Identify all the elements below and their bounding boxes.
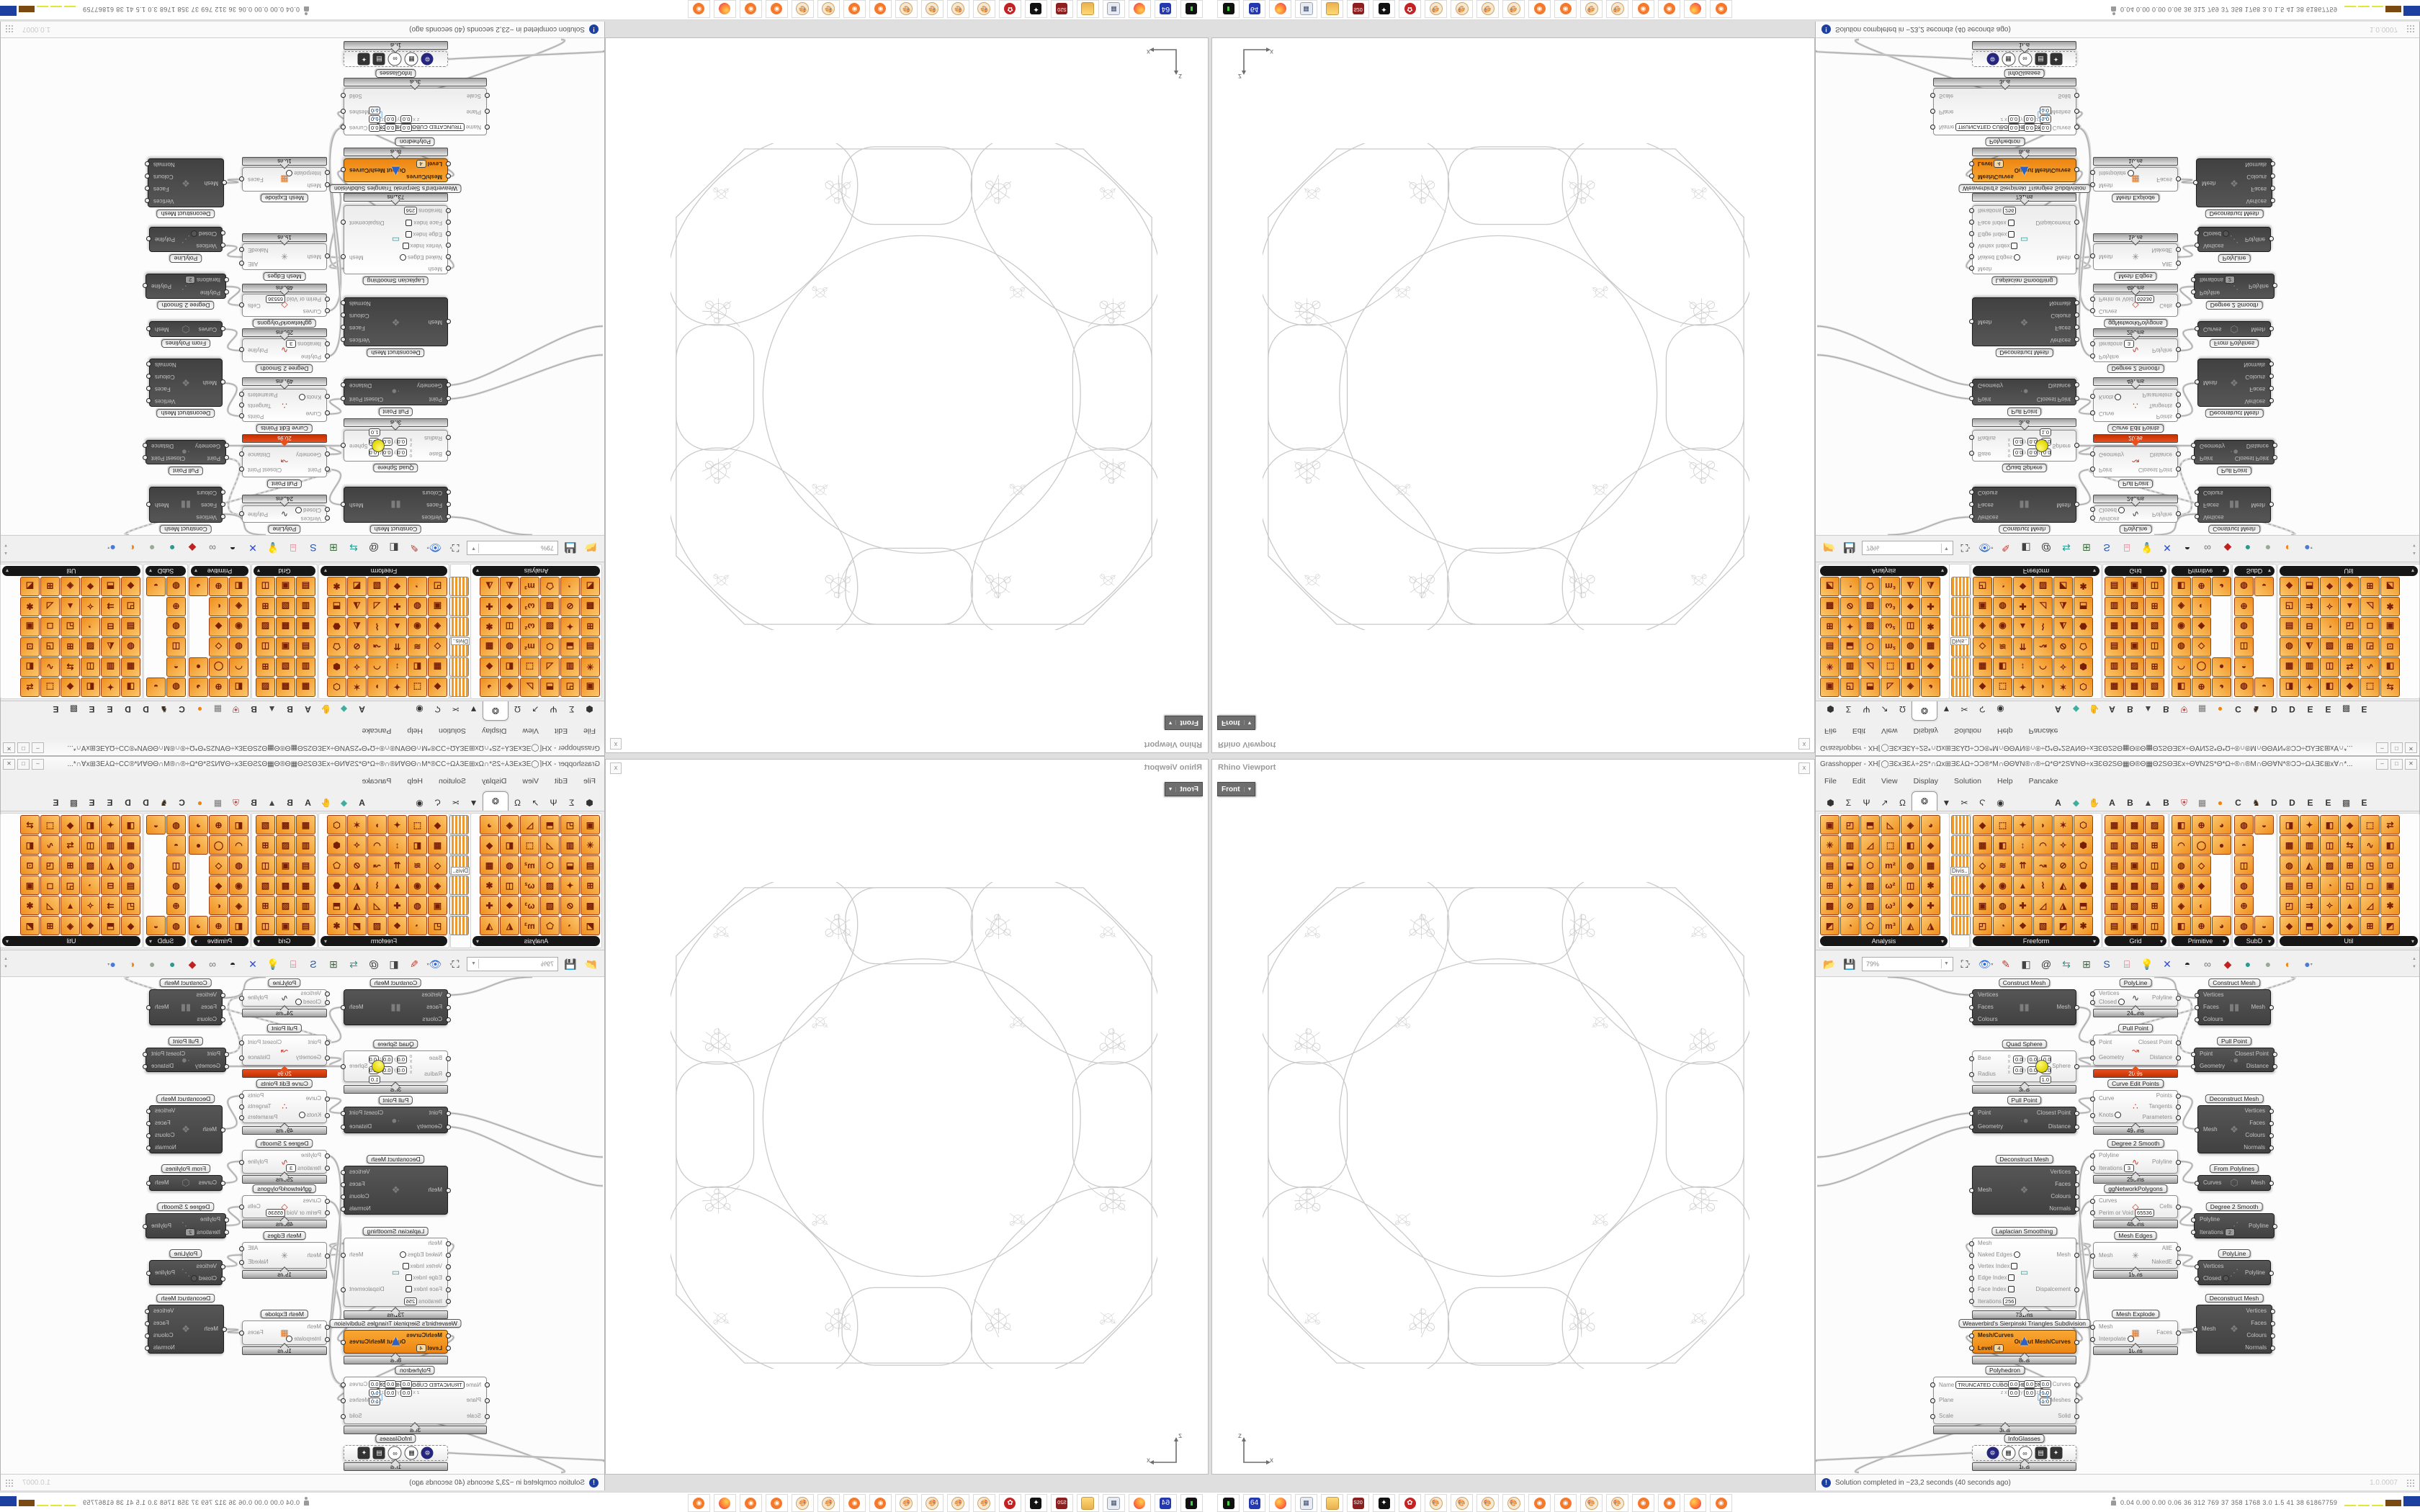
component-icon[interactable]: ◫	[256, 637, 275, 657]
component-icon[interactable]: ◆	[1921, 657, 1940, 677]
port-nub[interactable]	[2074, 1125, 2079, 1130]
component-icon[interactable]: ⬚	[40, 678, 60, 697]
port-closest-point[interactable]: Closest Point	[349, 1110, 383, 1116]
port-sphere[interactable]: Sphere	[349, 443, 368, 449]
tab-vector[interactable]: ↗	[526, 795, 544, 811]
port-mesh[interactable]: Mesh	[307, 1252, 321, 1259]
bulb-icon[interactable]: 💡	[265, 956, 281, 972]
node-label[interactable]: Quad Sphere	[373, 1040, 418, 1048]
component-icon[interactable]: ⬚	[1993, 815, 2012, 834]
component-icon[interactable]: ✶	[347, 815, 367, 834]
infoglasses-icon[interactable]: ▤	[2035, 1447, 2047, 1459]
component-icon[interactable]: ◆	[2280, 916, 2299, 935]
tab-C[interactable]: C	[173, 701, 191, 717]
port-vertices[interactable]: Vertices	[197, 243, 217, 249]
component-icon[interactable]: m³	[520, 577, 539, 596]
component-icon[interactable]: ◍	[229, 855, 248, 875]
component-icon[interactable]: ▧	[540, 876, 560, 895]
port-iterations[interactable]: Iterations256	[1978, 1297, 2016, 1305]
port-mesh-curves[interactable]: Mesh/Curves	[406, 174, 442, 180]
taskbar-app-palette[interactable]: 🎨	[1451, 0, 1473, 18]
component-icon[interactable]: ↝	[367, 637, 387, 657]
port-nub[interactable]	[2195, 380, 2200, 385]
taskbar-app-blender[interactable]: ◉	[1554, 1494, 1577, 1512]
component-icon[interactable]: ▤	[2105, 855, 2124, 875]
preview-icon[interactable]: 👁▾	[426, 956, 442, 972]
port-geometry[interactable]: Geometry	[1978, 382, 2003, 389]
port-mesh[interactable]: Mesh	[2203, 380, 2218, 387]
component-icon[interactable]: ◉	[2172, 617, 2191, 636]
component-icon[interactable]: ↕	[387, 657, 407, 677]
port-distance[interactable]: Distance	[349, 382, 372, 389]
component-icon[interactable]: ◫	[166, 855, 186, 875]
tab-display[interactable]: Ϛ	[429, 795, 447, 811]
component-icon[interactable]: ⬠	[327, 855, 346, 875]
port-nub[interactable]	[224, 1064, 229, 1069]
component-icon[interactable]: ▥	[449, 815, 469, 834]
checkbox[interactable]	[2008, 231, 2015, 238]
value-chip[interactable]: 0.0	[2013, 1056, 2023, 1063]
value-chip[interactable]: 0.0	[2040, 1380, 2051, 1388]
taskbar-app-blackapp[interactable]: ✦	[1025, 0, 1047, 18]
node-degree---smooth[interactable]: PolylineIterations2Polyline⋰	[2194, 1213, 2275, 1238]
component-icon[interactable]: ⬠	[2074, 855, 2093, 875]
node-pull-point[interactable]: PointGeometryClosest PointDistance·●	[2194, 1048, 2275, 1072]
palette-group-label[interactable]: Util▾	[2280, 936, 2418, 946]
palette-group-label[interactable]: Primitive▾	[191, 936, 248, 946]
taskbar-app-blender[interactable]: ◉	[869, 1494, 892, 1512]
component-icon[interactable]: ◆	[1921, 835, 1940, 855]
rings-icon[interactable]: ∞	[2200, 540, 2215, 556]
node-label[interactable]: Mesh Explode	[261, 194, 308, 202]
port-nub[interactable]	[2176, 996, 2181, 1001]
component-icon[interactable]: ▨	[2145, 617, 2164, 636]
node-degree---smooth[interactable]: PolylineIterations3Polyline∿	[2093, 338, 2178, 362]
port-nub[interactable]	[341, 1182, 346, 1187]
node-label[interactable]: PolyLine	[170, 254, 202, 263]
component-icon[interactable]: ◿	[540, 657, 560, 677]
tab-D[interactable]: D	[2265, 701, 2283, 717]
port-nub[interactable]	[1930, 109, 1935, 114]
port-tangents[interactable]: Tangents	[248, 1103, 271, 1110]
toolbar-overflow-scroll[interactable]: ▲▼	[2411, 539, 2418, 557]
component-icon[interactable]: ◰	[2280, 896, 2299, 915]
component-icon[interactable]: ✱	[480, 617, 499, 636]
port-faces[interactable]: Faces	[248, 176, 264, 183]
node-label[interactable]: Deconstruct Mesh	[2205, 210, 2264, 218]
port-nub[interactable]	[224, 1218, 229, 1223]
component-icon[interactable]: ❖	[81, 916, 100, 935]
menu-item-file[interactable]: File	[1824, 726, 1837, 735]
component-icon[interactable]: ∿	[2360, 657, 2380, 677]
component-icon[interactable]: ◩	[20, 577, 40, 596]
value-chip[interactable]: 0.0	[2008, 1389, 2020, 1397]
component-icon[interactable]: ▥	[1951, 876, 1971, 895]
port-polyline[interactable]: Polyline	[248, 994, 268, 1001]
tab-maths[interactable]: Σ	[563, 795, 581, 811]
component-icon[interactable]: ⬠	[1860, 577, 1880, 596]
menu-item-edit[interactable]: Edit	[555, 777, 568, 786]
value-chip[interactable]: 0.0	[383, 1056, 393, 1063]
port-nub[interactable]	[2269, 1181, 2274, 1186]
component-icon[interactable]: ◯	[2192, 835, 2211, 855]
tab-eye[interactable]: ◉	[1991, 795, 2009, 811]
port-colours[interactable]: Colours	[422, 1016, 442, 1022]
port-distance[interactable]: Distance	[151, 444, 174, 450]
value-chip[interactable]: 0.0	[2013, 1066, 2023, 1074]
save-file-icon[interactable]: 💾	[563, 540, 578, 556]
port-polyline[interactable]: Polyline	[248, 1158, 268, 1165]
node-label[interactable]: ggNetworkPolygons	[253, 319, 316, 328]
component-icon[interactable]: ⊞	[60, 855, 80, 875]
node-from-polylines[interactable]: CurvesMesh⬡	[149, 1175, 223, 1191]
component-icon[interactable]: ◫	[2145, 855, 2164, 875]
port-nub[interactable]	[446, 1005, 451, 1010]
taskbar-app-blackapp[interactable]: ✦	[1373, 1494, 1395, 1512]
port-nub[interactable]	[220, 514, 225, 519]
node-label[interactable]: Deconstruct Mesh	[157, 210, 215, 218]
node-label[interactable]: Curve Edit Points	[256, 1079, 313, 1088]
node-label[interactable]: InfoGlasses	[2004, 69, 2045, 78]
port-plane[interactable]: Plane	[467, 109, 481, 115]
port-distance[interactable]: Distance	[151, 1063, 174, 1069]
gha-loader-icon[interactable]: ⇆	[346, 956, 362, 972]
palette-group-label[interactable]: Util▾	[2, 936, 140, 946]
component-icon[interactable]: ⬢	[2074, 657, 2093, 677]
port-iterations[interactable]: Iterations3	[286, 1164, 321, 1172]
component-icon[interactable]: ✱	[2074, 577, 2093, 596]
grasshopper-title-bar[interactable]: Grasshopper - XH⌈◯ƎƐxƎƐ⅄÷2S*∩Ωx⊞ƎƐ⅄Ω÷ƆƆ®…	[1816, 757, 2419, 773]
port-nub[interactable]	[341, 301, 346, 306]
port-nub[interactable]	[2176, 1260, 2181, 1265]
port-nub[interactable]	[325, 991, 330, 996]
viewport-header[interactable]: Rhino Viewport x	[606, 735, 1208, 752]
component-icon[interactable]: ▧	[276, 657, 295, 677]
port-nub[interactable]	[2090, 308, 2095, 313]
value-chip[interactable]: 0.0	[2027, 1056, 2038, 1063]
component-icon[interactable]: ◰	[560, 678, 580, 697]
palette-group-label[interactable]: Analysis▾	[1820, 566, 1948, 576]
s-search-icon[interactable]: S	[2099, 540, 2115, 556]
component-icon[interactable]: ⬢	[327, 835, 346, 855]
component-icon[interactable]: ◿	[2033, 896, 2053, 915]
port-colours[interactable]: Colours	[2051, 1193, 2071, 1200]
rings-icon[interactable]: ∞	[205, 956, 220, 972]
component-icon[interactable]: ≋	[408, 855, 427, 875]
port-nub[interactable]	[1969, 396, 1974, 401]
port-point[interactable]: Point	[429, 1110, 442, 1116]
port-nub[interactable]	[1930, 1414, 1935, 1419]
taskbar-app-palette[interactable]: 🎨	[947, 1494, 969, 1512]
menu-item-display[interactable]: Display	[482, 726, 506, 735]
toggle-open[interactable]	[2118, 507, 2125, 513]
port-nub[interactable]	[2269, 1146, 2274, 1151]
node-laplacian-smoothing[interactable]: MeshNaked EdgesVertex IndexEdge IndexFac…	[344, 205, 448, 274]
component-icon[interactable]: ⬡	[540, 855, 560, 875]
component-icon[interactable]: ❖	[500, 597, 519, 616]
port-nub[interactable]	[1969, 435, 1974, 440]
port-nub[interactable]	[2176, 176, 2181, 181]
port-nub[interactable]	[325, 1000, 330, 1005]
component-icon[interactable]: ◨	[121, 678, 140, 697]
port-nub[interactable]	[325, 1254, 330, 1259]
node-canvas[interactable]: Construct MeshVerticesFacesColoursMesh▮▮…	[1, 37, 604, 536]
component-icon[interactable]: ▨	[256, 876, 275, 895]
sketch-icon[interactable]: ✎	[406, 956, 422, 972]
port-nub[interactable]	[325, 516, 330, 521]
port-point[interactable]: Point	[1978, 396, 1991, 402]
component-icon[interactable]: ω³	[1881, 896, 1900, 915]
component-icon[interactable]: ⬒	[2300, 916, 2319, 935]
component-icon[interactable]: ◕	[480, 678, 499, 697]
component-icon[interactable]: ◰	[121, 597, 140, 616]
component-icon[interactable]: ⊕	[2234, 896, 2254, 915]
gem-red-icon[interactable]: ◆	[2220, 956, 2236, 972]
port-colours[interactable]: Colours	[1978, 490, 1998, 496]
tab-D[interactable]: D	[2283, 701, 2301, 717]
component-icon[interactable]: ▣	[2125, 577, 2144, 596]
port-vertices[interactable]: Vertices	[301, 990, 321, 996]
minimize-button[interactable]: –	[32, 759, 44, 770]
component-icon[interactable]: ⬒	[2074, 896, 2093, 915]
port-point[interactable]: Point	[1978, 1110, 1991, 1116]
port-nub[interactable]	[2176, 1160, 2181, 1165]
node-label[interactable]: Curve Edit Points	[2107, 424, 2164, 433]
component-icon[interactable]: ◕	[2212, 916, 2231, 935]
gift-icon[interactable]: ⌸	[285, 956, 301, 972]
component-icon[interactable]: ◻	[40, 617, 60, 636]
component-icon[interactable]: ▣	[2125, 855, 2144, 875]
component-icon[interactable]: ◔	[408, 916, 427, 935]
component-icon[interactable]: ◇	[428, 637, 447, 657]
component-icon[interactable]: ⊞	[256, 597, 275, 616]
taskbar-app-redapp[interactable]: ✿	[999, 0, 1021, 18]
port-faces[interactable]: Faces	[2203, 502, 2219, 508]
port-points[interactable]: Points	[248, 1092, 264, 1099]
port-mesh[interactable]: Mesh	[202, 380, 217, 387]
node-label[interactable]: Degree 2 Smooth	[2206, 301, 2263, 310]
port-nub[interactable]	[325, 507, 330, 512]
component-icon[interactable]: ◿	[40, 597, 60, 616]
menu-item-pancake[interactable]: Pancake	[362, 777, 392, 786]
component-icon[interactable]: m²	[1881, 855, 1900, 875]
port-interpolate[interactable]: Interpolate	[286, 1336, 321, 1342]
tab-mountain[interactable]: ▲	[263, 795, 281, 811]
component-icon[interactable]: ⬚	[520, 657, 539, 677]
taskbar-app-firefox[interactable]	[714, 0, 736, 18]
component-icon[interactable]: ◭	[1901, 577, 1920, 596]
node-label[interactable]: Polyhedron	[395, 138, 435, 146]
component-icon[interactable]: ◍	[166, 815, 186, 834]
port-solid[interactable]: Solid	[2058, 1413, 2071, 1419]
port-vertex-index[interactable]: Vertex Index	[403, 1263, 442, 1269]
port-radius[interactable]: Radius	[1978, 435, 1996, 441]
component-icon[interactable]: ◰	[1840, 815, 1860, 834]
port-vertices[interactable]: Vertices	[2245, 1107, 2265, 1114]
port-polyline[interactable]: Polyline	[248, 511, 268, 518]
node-construct-mesh[interactable]: VerticesFacesColoursMesh▮▮	[1972, 487, 2076, 523]
component-icon[interactable]: ⇉	[2300, 597, 2319, 616]
node-label[interactable]: Mesh Edges	[2114, 272, 2156, 281]
port-nub[interactable]	[220, 1181, 225, 1186]
component-icon[interactable]: ⬡	[327, 815, 346, 834]
node-construct-mesh[interactable]: VerticesFacesColoursMesh▮▮	[149, 989, 223, 1025]
port-curves[interactable]: Curves	[349, 125, 367, 131]
port-perim-or-void[interactable]: Perim or Void65536	[266, 1209, 321, 1217]
port-mesh[interactable]: Mesh	[2099, 1252, 2113, 1259]
taskbar-app-blender[interactable]: ◉	[766, 0, 788, 18]
port-colours[interactable]: Colours	[197, 490, 217, 496]
port-nub[interactable]	[446, 1241, 451, 1246]
ball-teal-icon[interactable]: ●	[2240, 956, 2256, 972]
component-icon[interactable]: ◿	[367, 597, 387, 616]
gha-loader-icon[interactable]: ⇆	[2058, 540, 2074, 556]
port-nub[interactable]	[1969, 243, 1974, 248]
tab-gem[interactable]: ◆	[335, 701, 353, 717]
port-nub[interactable]	[239, 392, 244, 397]
component-icon[interactable]: ▥	[1840, 835, 1860, 855]
component-icon[interactable]: ▧	[276, 597, 295, 616]
component-icon[interactable]: ◩	[2053, 916, 2073, 935]
component-icon[interactable]: ◕	[1921, 815, 1940, 834]
tab-D[interactable]: D	[119, 701, 137, 717]
component-icon[interactable]: ◒	[2254, 678, 2274, 697]
node-polyline[interactable]: VerticesClosedPolyline⋰	[2197, 1260, 2271, 1285]
taskbar-app-blender[interactable]: ◉	[1710, 1494, 1732, 1512]
port-vertices[interactable]: Vertices	[2203, 514, 2223, 521]
port-nub[interactable]	[341, 93, 346, 98]
port-colours[interactable]: Colours	[2245, 1132, 2265, 1138]
close-icon[interactable]: x	[610, 762, 622, 774]
menu-item-edit[interactable]: Edit	[1852, 777, 1865, 786]
node-label[interactable]: Deconstruct Mesh	[367, 348, 425, 357]
component-icon[interactable]: ◆	[209, 617, 228, 636]
tab-darkgrid[interactable]: ▩	[2337, 795, 2355, 811]
port-vertices[interactable]: Vertices	[2099, 516, 2119, 522]
port-faces[interactable]: Faces	[201, 1004, 217, 1010]
component-icon[interactable]: ◍	[2280, 855, 2299, 875]
port-tangents[interactable]: Tangents	[2149, 1103, 2172, 1110]
component-icon[interactable]: ✱	[2380, 597, 2400, 616]
node-deconstruct-mesh[interactable]: MeshVerticesFacesColoursNormals❖	[1972, 1166, 2076, 1215]
window-plant-icon[interactable]: ⊞	[2079, 540, 2094, 556]
port-nub[interactable]	[341, 1170, 346, 1175]
port-faces[interactable]: Faces	[2249, 1120, 2265, 1126]
taskbar-app-blender[interactable]: ◉	[1528, 0, 1551, 18]
port-nub[interactable]	[2090, 1325, 2095, 1330]
node-label[interactable]: Degree 2 Smooth	[158, 301, 215, 310]
port-iterations[interactable]: Iterations256	[1978, 207, 2016, 215]
component-icon[interactable]: ◍	[408, 896, 427, 915]
component-icon[interactable]: ◫	[500, 617, 519, 636]
component-icon[interactable]: ⊞	[2360, 916, 2380, 935]
port-nub[interactable]	[446, 266, 451, 271]
node-label[interactable]: Pull Point	[267, 480, 302, 488]
component-icon[interactable]: ▥	[1951, 597, 1971, 616]
component-icon[interactable]: ▦	[296, 815, 315, 834]
value-chip[interactable]: 4	[1994, 160, 2004, 168]
port-point[interactable]: Point	[207, 1050, 220, 1057]
port-nub[interactable]	[2090, 254, 2095, 259]
port-nub[interactable]	[2176, 1094, 2181, 1099]
taskbar-app-palette[interactable]: 🎨	[895, 0, 918, 18]
component-icon[interactable]: ⊟	[101, 876, 120, 895]
node-deconstruct-mesh[interactable]: MeshVerticesFacesColoursNormals❖	[149, 1105, 223, 1153]
save-file-icon[interactable]: 💾	[1842, 956, 1857, 972]
tab-shield[interactable]: ⛨	[2175, 701, 2193, 717]
port-parameters[interactable]: Parameters	[248, 392, 277, 398]
port-nub[interactable]	[2191, 1052, 2196, 1057]
resize-grip[interactable]	[5, 24, 14, 33]
component-icon[interactable]: ω²	[1881, 617, 1900, 636]
component-icon[interactable]: ◱	[60, 617, 80, 636]
component-icon[interactable]: ▣	[428, 597, 447, 616]
port-nub[interactable]	[446, 435, 451, 440]
tab-gem[interactable]: ◆	[2067, 795, 2085, 811]
taskbar-app-blender[interactable]: ◉	[1658, 0, 1680, 18]
taskbar-app-blender[interactable]: ◉	[843, 1494, 866, 1512]
component-icon[interactable]: ◈	[2172, 597, 2191, 616]
port-nub[interactable]	[485, 125, 490, 130]
tab-E[interactable]: E	[2301, 701, 2319, 717]
node-weaverbird-s-sierpinski-triangles-subdivision[interactable]: Mesh/CurvesLevel4Output Mesh/Curves▲	[1972, 158, 2076, 182]
port-normals[interactable]: Normals	[2049, 301, 2071, 307]
node-pull-point[interactable]: PointGeometryClosest PointDistance↝	[2093, 1035, 2178, 1066]
port-nub[interactable]	[2272, 1052, 2277, 1057]
port-nub[interactable]	[1969, 1333, 1974, 1338]
port-nub[interactable]	[239, 176, 244, 181]
port-nub[interactable]	[2074, 396, 2079, 401]
component-icon[interactable]: ❖	[387, 577, 407, 596]
component-icon[interactable]: ◍	[166, 678, 186, 697]
zoom-extents-icon[interactable]: ⛶▾	[1958, 956, 1973, 972]
port-nub[interactable]	[341, 1064, 346, 1069]
component-icon[interactable]: ◿	[1860, 657, 1880, 677]
component-icon[interactable]: ↕	[387, 835, 407, 855]
component-icon[interactable]: ⬓	[1840, 637, 1860, 657]
port-nub[interactable]	[2074, 1414, 2079, 1419]
palette-group-label[interactable]: Analysis▾	[1820, 936, 1948, 946]
sketch-icon[interactable]: ✎	[1998, 956, 2014, 972]
node-canvas[interactable]: Construct MeshVerticesFacesColoursMesh▮▮…	[1816, 976, 2419, 1475]
port-dispalcement[interactable]: Dispalcement	[349, 220, 384, 226]
component-icon[interactable]: ⊞	[1820, 876, 1839, 895]
port-polyline[interactable]: Polyline	[200, 1216, 220, 1223]
port-geometry[interactable]: Geometry	[1978, 1123, 2003, 1130]
component-icon[interactable]: ▦	[2280, 657, 2299, 677]
port-geometry[interactable]: Geometry	[2099, 1054, 2124, 1061]
component-icon[interactable]: ◇	[1973, 637, 1992, 657]
component-icon[interactable]: ⊞	[1820, 617, 1839, 636]
component-icon[interactable]: ◕	[2212, 678, 2231, 697]
port-closest-point[interactable]: Closest Point	[349, 396, 383, 402]
tab-C[interactable]: C	[173, 795, 191, 811]
port-cells[interactable]: Cells	[248, 302, 261, 309]
component-icon[interactable]: ◿	[2360, 896, 2380, 915]
zoom-extents-icon[interactable]: ⛶▾	[1958, 540, 1973, 556]
value-chip[interactable]: 0.0	[385, 1389, 396, 1397]
taskbar-app-blender[interactable]: ◉	[1632, 1494, 1654, 1512]
tab-mesh[interactable]: ❂	[1912, 791, 1937, 811]
port-nub[interactable]	[222, 1327, 227, 1332]
port-interpolate[interactable]: Interpolate	[286, 171, 321, 177]
value-chip[interactable]: 0.0	[397, 1056, 407, 1063]
component-icon[interactable]: ◭	[500, 577, 519, 596]
taskbar-app-palette[interactable]: 🎨	[1476, 0, 1499, 18]
port-curve[interactable]: Curve	[2099, 1095, 2114, 1102]
preview-icon[interactable]: 👁▾	[1978, 956, 1994, 972]
component-icon[interactable]: ✚	[2013, 597, 2033, 616]
